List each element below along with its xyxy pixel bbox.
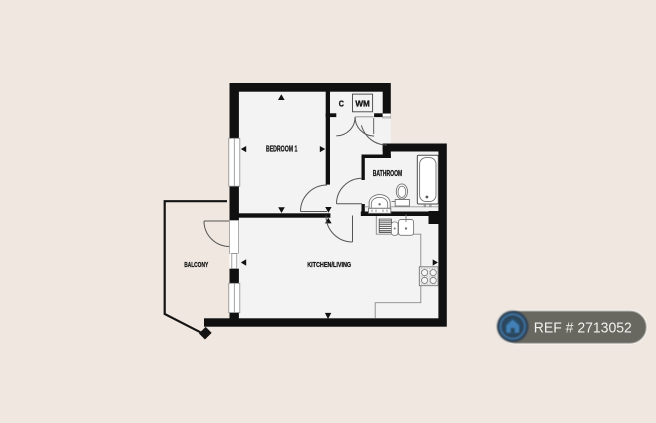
svg-text:REF # 2713052: REF # 2713052: [534, 319, 632, 336]
svg-text:BALCONY: BALCONY: [184, 260, 208, 269]
svg-text:KITCHEN/LIVING: KITCHEN/LIVING: [307, 260, 351, 269]
svg-text:WM: WM: [355, 99, 370, 108]
svg-text:BEDROOM 1: BEDROOM 1: [266, 144, 298, 154]
svg-text:BATHROOM: BATHROOM: [373, 168, 403, 178]
svg-text:C: C: [339, 99, 344, 109]
